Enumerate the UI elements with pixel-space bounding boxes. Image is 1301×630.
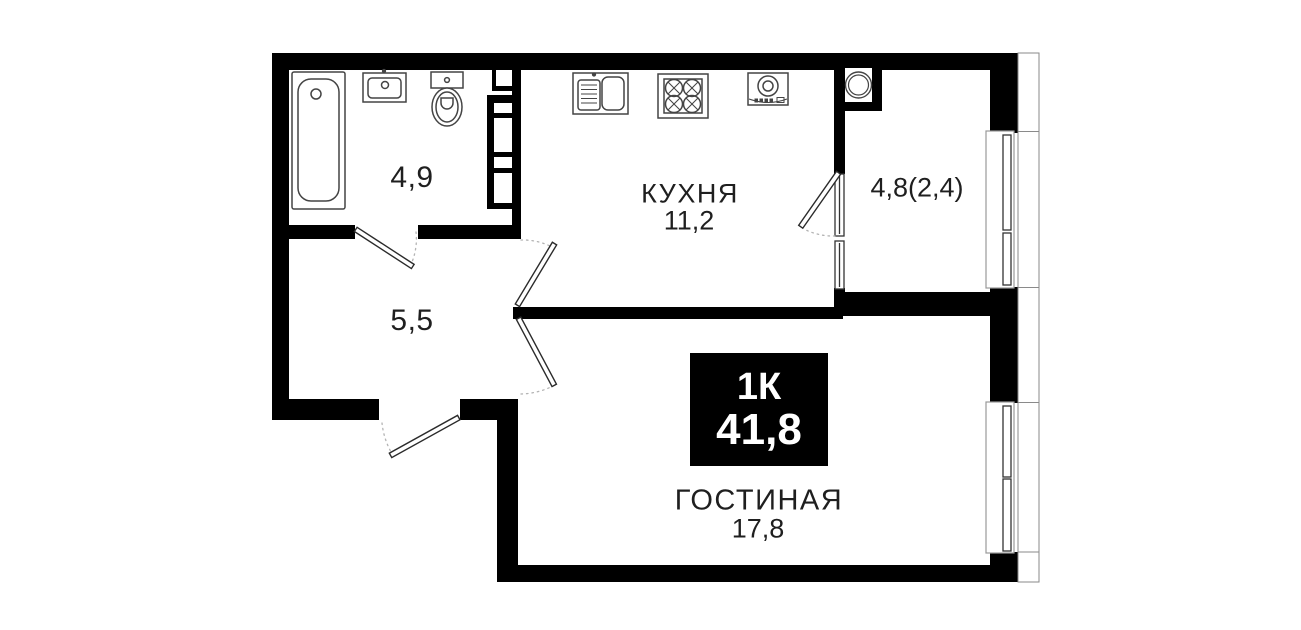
balcony-window xyxy=(986,131,1014,288)
kitchen-sink xyxy=(573,73,628,114)
walls xyxy=(272,53,1019,582)
bathroom-area-label: 4,9 xyxy=(390,161,433,195)
washing-machine xyxy=(748,73,788,105)
bathroom-door xyxy=(354,227,416,268)
bathroom-sink xyxy=(363,70,406,102)
bathtub xyxy=(292,72,345,209)
facade-glazing-band xyxy=(1018,53,1039,582)
living-room-window xyxy=(986,402,1014,553)
entrance-door xyxy=(382,415,460,457)
toilet xyxy=(431,72,463,126)
living-room-area-label: 17,8 xyxy=(732,514,785,545)
floor-plan: 4,9 КУХНЯ 11,2 4,8(2,4) 5,5 1К 41,8 ГОСТ… xyxy=(0,0,1301,630)
stove xyxy=(658,74,708,118)
floor-plan-drawing xyxy=(0,0,1301,630)
hallway-area-label: 5,5 xyxy=(390,304,433,338)
balcony-area-label: 4,8(2,4) xyxy=(870,173,963,204)
balcony-door-window-frame xyxy=(835,174,844,289)
living-room-door xyxy=(516,317,556,394)
apartment-type-label: 1К xyxy=(737,368,781,406)
kitchen-area-label: 11,2 xyxy=(664,206,715,237)
apartment-total-area: 41,8 xyxy=(716,408,802,452)
apartment-badge: 1К 41,8 xyxy=(690,353,828,466)
balcony-door xyxy=(799,171,841,236)
kitchen-door xyxy=(515,240,556,307)
